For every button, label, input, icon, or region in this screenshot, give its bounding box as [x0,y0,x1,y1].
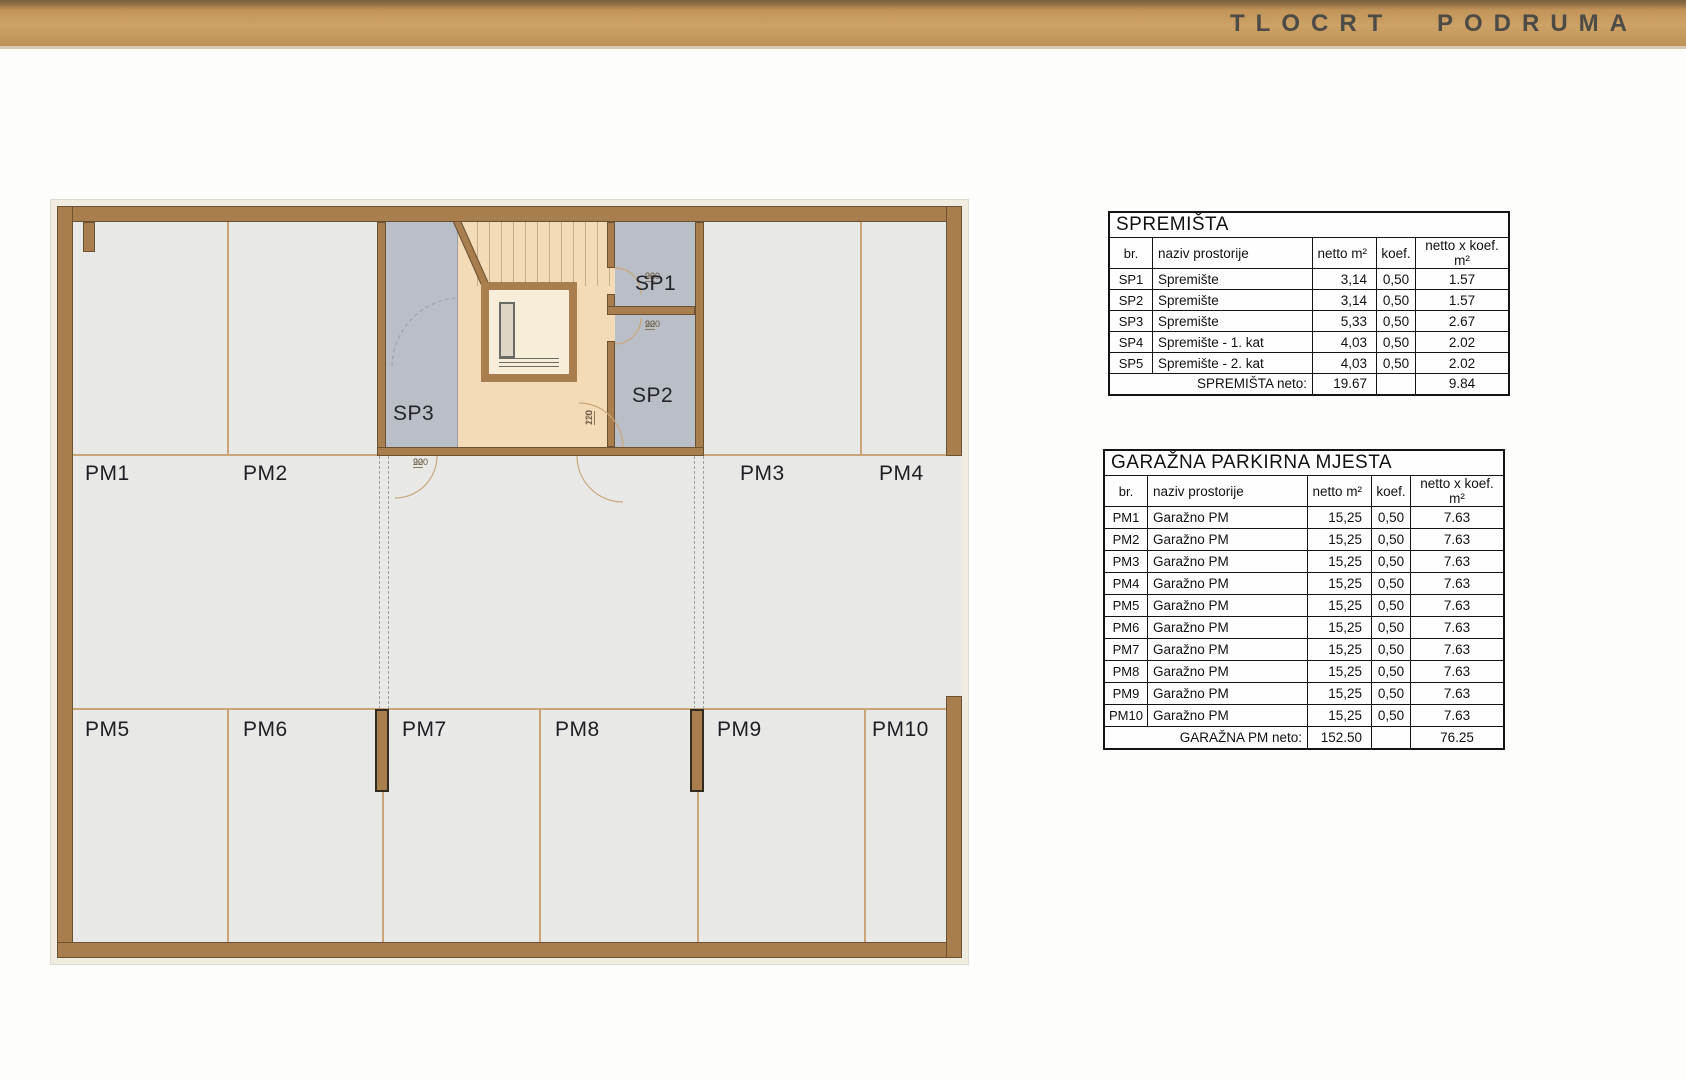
column-header: br. [1104,476,1148,507]
table-cell: PM2 [1104,529,1148,551]
table-cell: PM3 [1104,551,1148,573]
table-row: SP1Spremište3,140,501.57 [1109,269,1509,290]
table-cell: 7.63 [1411,573,1505,595]
table-garazna: GARAŽNA PARKIRNA MJESTA br. naziv prosto… [1103,449,1505,750]
table-cell: Garažno PM [1148,595,1308,617]
table-cell: 0,50 [1372,595,1411,617]
table-cell: Spremište - 1. kat [1153,332,1313,353]
table-title-row: SPREMIŠTA [1109,212,1509,238]
parking-label-pm7: PM7 [402,718,447,742]
table-row: PM6Garažno PM15,250,507.63 [1104,617,1504,639]
table-cell: 15,25 [1308,551,1372,573]
wall-stub-top-left [83,222,95,252]
table-cell: 15,25 [1308,705,1372,727]
table-cell: 7.63 [1411,529,1505,551]
parking-label-pm6: PM6 [243,718,288,742]
total-label: SPREMIŠTA neto: [1109,374,1313,395]
table-cell: 15,25 [1308,529,1372,551]
column-header: br. [1109,238,1153,269]
table-cell: SP1 [1109,269,1153,290]
table-title: SPREMIŠTA [1109,212,1509,238]
floor-plan: 90 220 90 220 90 220 110 220 SP3 SP1 SP2… [57,206,962,958]
parking-label-pm5: PM5 [85,718,130,742]
table-cell: 0,50 [1377,332,1416,353]
table-cell: 1.57 [1416,269,1510,290]
table-cell: 7.63 [1411,507,1505,529]
pillar-stub [690,709,704,792]
table-cell: 3,14 [1313,290,1377,311]
page: TLOCRT PODRUMA [0,0,1686,1080]
table-cell: 15,25 [1308,595,1372,617]
table-cell: 5,33 [1313,311,1377,332]
table-cell: 15,25 [1308,639,1372,661]
total-netto: 152.50 [1308,727,1372,749]
parking-label-pm9: PM9 [717,718,762,742]
table-cell: 7.63 [1411,661,1505,683]
table-cell: 7.63 [1411,551,1505,573]
table-cell: 1.57 [1416,290,1510,311]
table-cell: 15,25 [1308,661,1372,683]
outer-wall-top [57,206,962,222]
total-product: 76.25 [1411,727,1505,749]
column-header: netto x koef. m² [1411,476,1505,507]
table-cell: PM4 [1104,573,1148,595]
table-cell: SP5 [1109,353,1153,374]
table-title-row: GARAŽNA PARKIRNA MJESTA [1104,450,1504,476]
table-cell: 2.67 [1416,311,1510,332]
table-header-row: br. naziv prostorije netto m² koef. nett… [1109,238,1509,269]
table-total-row: SPREMIŠTA neto: 19.67 9.84 [1109,374,1509,395]
table-cell: Garažno PM [1148,573,1308,595]
room-label-sp1: SP1 [635,272,676,296]
table-cell: 7.63 [1411,639,1505,661]
total-product: 9.84 [1416,374,1510,395]
table-cell: 0,50 [1372,661,1411,683]
table-cell: 0,50 [1372,529,1411,551]
table-row: SP4Spremište - 1. kat4,030,502.02 [1109,332,1509,353]
table-spremista: SPREMIŠTA br. naziv prostorije netto m² … [1108,211,1510,396]
parking-label-pm8: PM8 [555,718,600,742]
table-cell: 7.63 [1411,683,1505,705]
table-cell: Garažno PM [1148,507,1308,529]
table-cell: 0,50 [1372,683,1411,705]
table-cell: PM10 [1104,705,1148,727]
column-header: koef. [1377,238,1416,269]
table-cell: PM1 [1104,507,1148,529]
table-cell: 0,50 [1377,353,1416,374]
table-row: PM8Garažno PM15,250,507.63 [1104,661,1504,683]
table-cell: 0,50 [1377,269,1416,290]
table-row: SP5Spremište - 2. kat4,030,502.02 [1109,353,1509,374]
table-cell: 0,50 [1377,311,1416,332]
total-label: GARAŽNA PM neto: [1104,727,1308,749]
table-cell: 0,50 [1372,705,1411,727]
table-row: PM10Garažno PM15,250,507.63 [1104,705,1504,727]
table-cell: 0,50 [1372,617,1411,639]
total-koef [1377,374,1416,395]
table-cell: SP3 [1109,311,1153,332]
table-cell: 15,25 [1308,507,1372,529]
table-cell: 7.63 [1411,595,1505,617]
column-header: koef. [1372,476,1411,507]
table-cell: 7.63 [1411,617,1505,639]
table-cell: Garažno PM [1148,705,1308,727]
parking-label-pm2: PM2 [243,462,288,486]
table-total-row: GARAŽNA PM neto: 152.50 76.25 [1104,727,1504,749]
table-row: SP3Spremište5,330,502.67 [1109,311,1509,332]
table-cell: Spremište - 2. kat [1153,353,1313,374]
outer-wall-bottom [57,942,962,958]
table-cell: Garažno PM [1148,529,1308,551]
table-cell: Garažno PM [1148,639,1308,661]
table-cell: 3,14 [1313,269,1377,290]
table-cell: Spremište [1153,311,1313,332]
table-cell: PM9 [1104,683,1148,705]
room-label-sp3: SP3 [393,402,434,426]
parking-label-pm3: PM3 [740,462,785,486]
table-cell: 0,50 [1372,573,1411,595]
table-cell: 2.02 [1416,332,1510,353]
table-row: PM1Garažno PM15,250,507.63 [1104,507,1504,529]
door-height: 220 [585,410,594,425]
door-height: 220 [645,320,660,329]
table-cell: 2.02 [1416,353,1510,374]
outer-wall-left [57,206,73,958]
column-header: naziv prostorije [1148,476,1308,507]
table-cell: 7.63 [1411,705,1505,727]
table-cell: Spremište [1153,290,1313,311]
parking-label-pm1: PM1 [85,462,130,486]
table-cell: Spremište [1153,269,1313,290]
table-cell: 0,50 [1372,507,1411,529]
table-row: PM2Garažno PM15,250,507.63 [1104,529,1504,551]
table-cell: 15,25 [1308,617,1372,639]
parking-label-pm10: PM10 [872,718,929,742]
door-height: 220 [413,458,428,467]
table-cell: Garažno PM [1148,661,1308,683]
table-row: SP2Spremište3,140,501.57 [1109,290,1509,311]
column-header: netto m² [1313,238,1377,269]
pillar-stub [375,709,389,792]
table-row: PM5Garažno PM15,250,507.63 [1104,595,1504,617]
table-cell: SP4 [1109,332,1153,353]
floor-plan-sheet: 90 220 90 220 90 220 110 220 SP3 SP1 SP2… [51,200,968,964]
table-cell: Garažno PM [1148,551,1308,573]
page-title: TLOCRT PODRUMA [1230,0,1638,46]
table-row: PM9Garažno PM15,250,507.63 [1104,683,1504,705]
table-header-row: br. naziv prostorije netto m² koef. nett… [1104,476,1504,507]
outer-wall-right-upper [946,206,962,456]
table-cell: PM6 [1104,617,1148,639]
table-row: PM4Garažno PM15,250,507.63 [1104,573,1504,595]
column-header: naziv prostorije [1153,238,1313,269]
table-cell: 0,50 [1377,290,1416,311]
table-cell: 15,25 [1308,683,1372,705]
table-row: PM7Garažno PM15,250,507.63 [1104,639,1504,661]
door-swing-arcs [57,206,962,958]
total-koef [1372,727,1411,749]
room-label-sp2: SP2 [632,384,673,408]
table-cell: SP2 [1109,290,1153,311]
table-cell: PM5 [1104,595,1148,617]
outer-wall-right-lower [946,696,962,958]
column-header: netto m² [1308,476,1372,507]
table-cell: 0,50 [1372,639,1411,661]
table-cell: PM7 [1104,639,1148,661]
column-header: netto x koef. m² [1416,238,1510,269]
total-netto: 19.67 [1313,374,1377,395]
table-cell: PM8 [1104,661,1148,683]
header-banner: TLOCRT PODRUMA [0,0,1686,49]
table-cell: Garažno PM [1148,683,1308,705]
table-title: GARAŽNA PARKIRNA MJESTA [1104,450,1504,476]
table-cell: 15,25 [1308,573,1372,595]
parking-label-pm4: PM4 [879,462,924,486]
table-row: PM3Garažno PM15,250,507.63 [1104,551,1504,573]
table-cell: 0,50 [1372,551,1411,573]
table-cell: Garažno PM [1148,617,1308,639]
table-cell: 4,03 [1313,332,1377,353]
table-cell: 4,03 [1313,353,1377,374]
